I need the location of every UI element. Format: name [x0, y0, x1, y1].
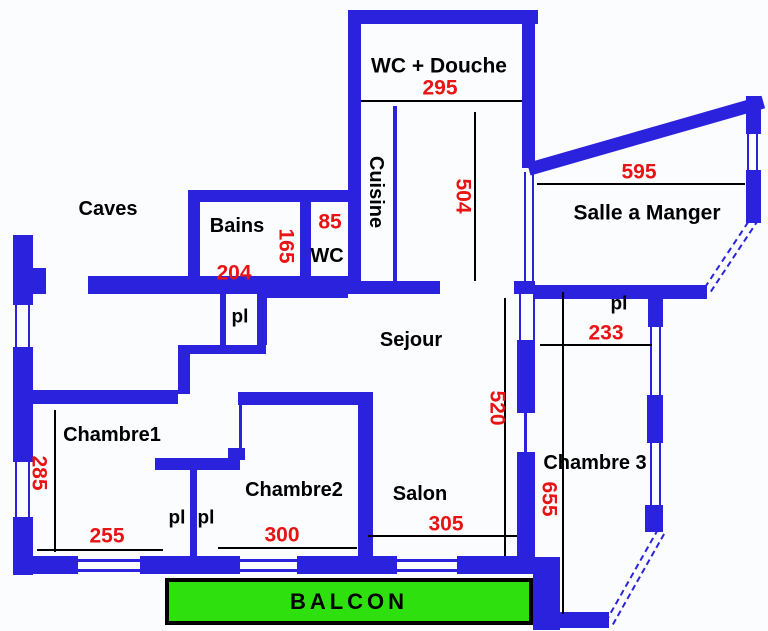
dimension-cuisine-height: 504 — [453, 178, 474, 213]
wall-segment — [348, 10, 538, 24]
window-lines — [659, 443, 661, 505]
wall-segment — [648, 285, 663, 327]
balcony-label: BALCON — [290, 589, 408, 615]
dimension-chambre3-height: 655 — [539, 481, 560, 516]
room-label-chambre1: Chambre1 — [63, 425, 161, 445]
dimension-bains-depth: 165 — [276, 228, 297, 263]
wall-segment — [522, 10, 535, 168]
wall-segment — [13, 517, 33, 575]
dimension-wc-width: 85 — [318, 212, 341, 233]
wall-segment — [517, 452, 535, 558]
wall-segment — [348, 281, 440, 294]
dashed-opening — [612, 533, 665, 625]
dimension-wc-douche-width: 295 — [422, 78, 457, 99]
wall-segment — [393, 106, 397, 281]
wall-segment — [647, 395, 663, 443]
window-lines — [659, 327, 661, 395]
room-label-wc: WC — [310, 246, 343, 266]
dimension-pl-right-width: 233 — [588, 323, 623, 344]
wall-segment — [13, 347, 33, 462]
wall-segment — [155, 458, 240, 470]
measure-line — [37, 549, 163, 551]
wall-segment — [140, 556, 240, 574]
room-label-pl-closet2: pl — [198, 509, 215, 528]
dimension-bains-width: 204 — [216, 263, 251, 284]
measure-line — [218, 547, 357, 549]
room-label-salle-a-manger: Salle a Manger — [573, 203, 720, 224]
wall-segment — [33, 390, 178, 404]
window-lines — [15, 462, 17, 519]
dashed-opening — [605, 529, 659, 622]
room-label-sejour: Sejour — [380, 330, 442, 350]
window-lines — [524, 172, 526, 282]
dimension-chambre1-width: 255 — [89, 526, 124, 547]
room-label-pl-closet1: pl — [169, 509, 186, 528]
wall-segment — [645, 505, 663, 532]
dashed-opening — [710, 219, 759, 292]
wall-segment — [33, 268, 46, 294]
room-label-cuisine: Cuisine — [366, 156, 386, 228]
window-lines — [650, 327, 652, 395]
window-lines — [263, 294, 348, 298]
dimension-chambre1-height: 285 — [29, 455, 50, 490]
window-lines — [28, 305, 30, 349]
wall-segment — [238, 392, 373, 405]
window-lines — [532, 172, 534, 282]
window-lines — [533, 293, 535, 340]
wall-segment — [13, 235, 33, 305]
room-label-caves: Caves — [79, 199, 138, 219]
wall-segment — [257, 293, 267, 345]
window-lines — [15, 305, 17, 349]
window-lines — [397, 569, 457, 572]
measure-line — [361, 100, 522, 102]
measure-line — [504, 298, 506, 556]
wall-segment — [348, 10, 361, 293]
window-lines — [524, 413, 527, 452]
wall-segment — [188, 190, 348, 202]
floor-plan-canvas: WC + Douche Cuisine Salle a Manger Caves… — [0, 0, 768, 631]
wall-segment — [517, 340, 535, 413]
wall-segment — [33, 556, 78, 574]
dimension-salle-width: 595 — [621, 162, 656, 183]
dimension-sejour-salon-height: 520 — [487, 390, 508, 425]
window-lines — [78, 559, 140, 562]
dimension-chambre2-width: 300 — [264, 525, 299, 546]
measure-line — [54, 410, 56, 552]
room-label-chambre3: Chambre 3 — [543, 453, 646, 473]
wall-segment — [514, 281, 535, 294]
wall-segment — [178, 345, 266, 354]
window-lines — [747, 134, 749, 170]
window-lines — [240, 569, 297, 572]
window-lines — [78, 569, 140, 572]
window-lines — [756, 134, 758, 170]
room-label-wc-douche: WC + Douche — [371, 56, 507, 77]
window-lines — [239, 403, 242, 450]
room-label-pl-right: pl — [611, 295, 628, 314]
room-label-bains: Bains — [210, 216, 264, 236]
room-label-chambre2: Chambre2 — [245, 480, 343, 500]
room-label-salon: Salon — [393, 484, 447, 504]
room-label-pl-hall: pl — [232, 308, 249, 327]
window-lines — [519, 293, 521, 340]
wall-segment — [178, 352, 190, 394]
window-lines — [650, 443, 652, 505]
window-lines — [240, 559, 297, 562]
wall-segment — [220, 293, 226, 345]
wall-segment — [297, 556, 397, 574]
wall-segment — [457, 556, 533, 574]
window-lines — [397, 559, 457, 562]
balcony: BALCON — [165, 578, 533, 625]
wall-segment — [537, 612, 609, 628]
wall-segment — [190, 470, 197, 558]
dimension-salon-width: 305 — [428, 514, 463, 535]
